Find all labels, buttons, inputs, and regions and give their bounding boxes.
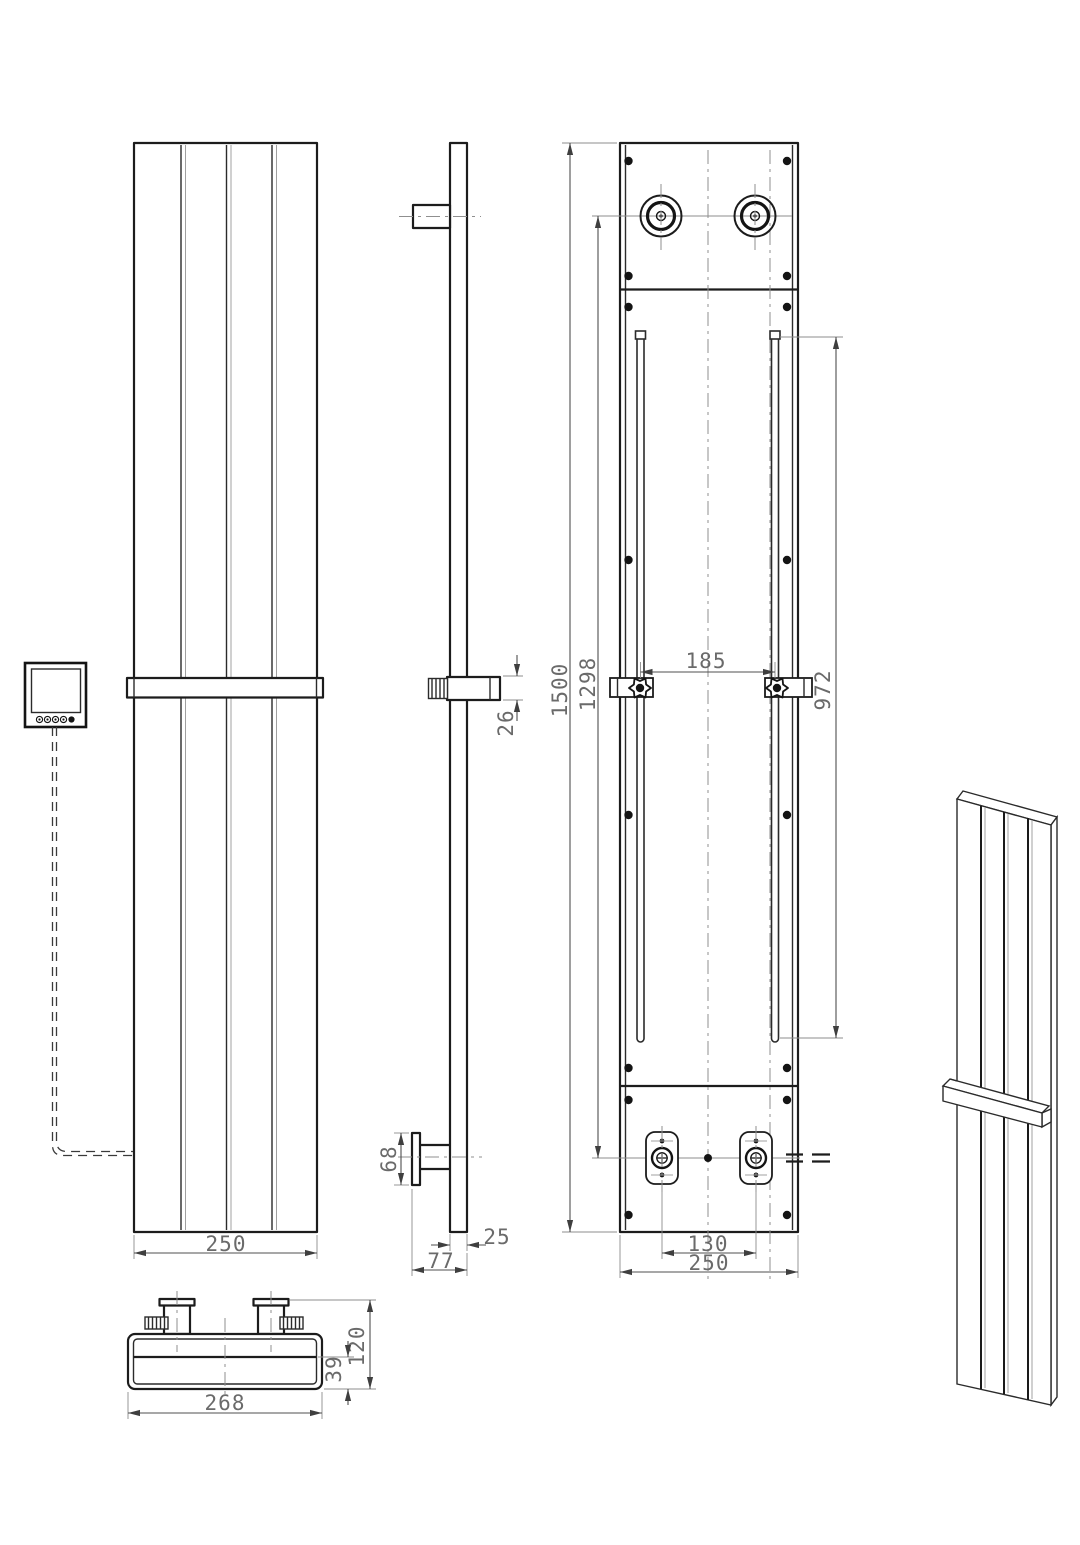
bracket-knurled-knob [429,679,448,699]
top-valve-knob-left [145,1317,168,1329]
perspective-view [943,791,1057,1405]
dimension-label-rail-spacing: 185 [686,649,727,673]
dimension-label-connection-height: 1298 [576,657,600,712]
dimension-label-rear-width: 250 [689,1251,730,1275]
wall-bracket-left [610,678,653,698]
dimension-label-panel-thickness: 25 [483,1225,510,1249]
wall-bracket-right [765,678,812,698]
bottom-connection-left [646,1126,678,1192]
side-towel-bar-bracket [429,677,501,700]
drawing-sheet: 250 [0,0,1080,1545]
top-valve-knob-right [280,1317,303,1329]
dimension-label-rail-length: 972 [811,670,835,711]
sheet-background [0,0,1080,1545]
perspective-side-face [1051,817,1057,1405]
dimension-label-total-depth: 77 [427,1249,454,1273]
front-towel-bar [127,678,323,698]
dimension-label-bracket-depth: 26 [494,709,518,736]
dimension-label-overall-height: 1500 [548,663,572,718]
center-screw [704,1154,712,1162]
dimension-label-top-width: 268 [205,1391,246,1415]
dimension-label-flange-height: 68 [377,1145,401,1172]
dimension-label-body-depth: 39 [322,1355,346,1382]
dimension-label-front-width: 250 [206,1232,247,1256]
bottom-connection-right [740,1126,772,1192]
dimension-label-top-depth: 120 [345,1326,369,1367]
controller-screen [32,669,81,713]
